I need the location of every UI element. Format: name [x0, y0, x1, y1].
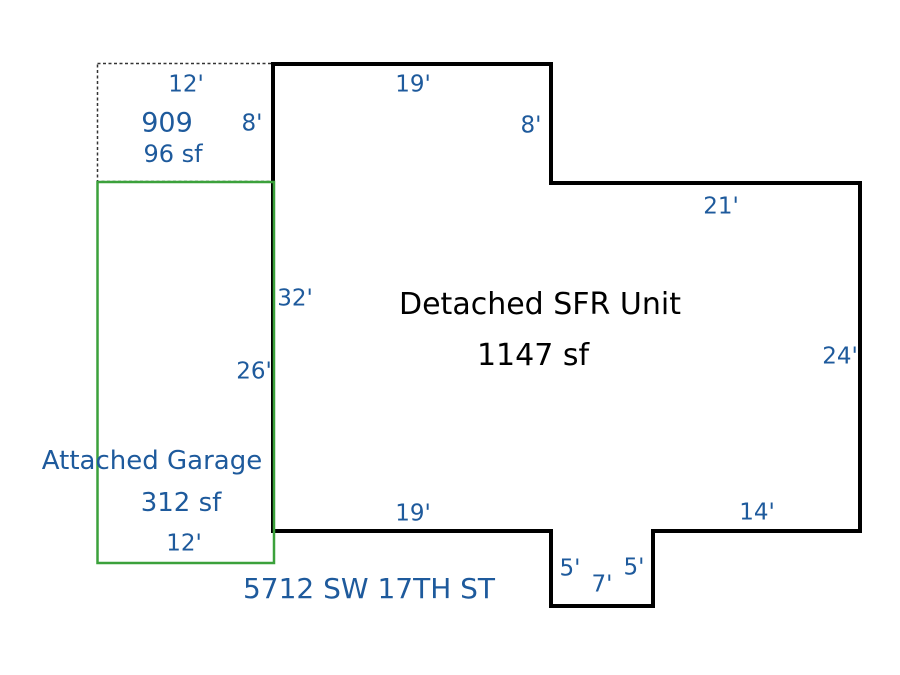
unit-bottom-left-dim-label: 19' [395, 503, 431, 526]
unit-area-label: 1147 sf [477, 341, 589, 371]
unit-name-label: Detached SFR Unit [399, 290, 681, 320]
unit-step-width-dim-label: 21' [703, 196, 739, 219]
property-sketch: 12' 909 96 sf 8' 19' 8' 21' 24' 14' 5' 7… [0, 0, 900, 675]
porch-code-label: 909 [141, 110, 193, 137]
garage-name-label: Attached Garage [42, 448, 262, 474]
unit-notch-right-dim-label: 5' [624, 557, 645, 580]
unit-step-height-dim-label: 8' [521, 115, 542, 138]
unit-notch-bottom-dim-label: 7' [592, 574, 613, 597]
unit-bottom-right-dim-label: 14' [739, 502, 775, 525]
unit-top-dim-label: 19' [395, 74, 431, 97]
porch-width-label: 12' [168, 74, 204, 97]
porch-height-label: 8' [242, 113, 263, 136]
unit-notch-left-dim-label: 5' [560, 558, 581, 581]
garage-height-dim-label: 26' [236, 361, 272, 384]
street-address-label: 5712 SW 17TH ST [243, 575, 495, 603]
unit-left-dim-label: 32' [277, 288, 313, 311]
porch-area-label: 96 sf [143, 142, 202, 166]
unit-right-dim-label: 24' [822, 346, 858, 369]
garage-area-label: 312 sf [141, 490, 222, 516]
garage-width-dim-label: 12' [166, 533, 202, 556]
